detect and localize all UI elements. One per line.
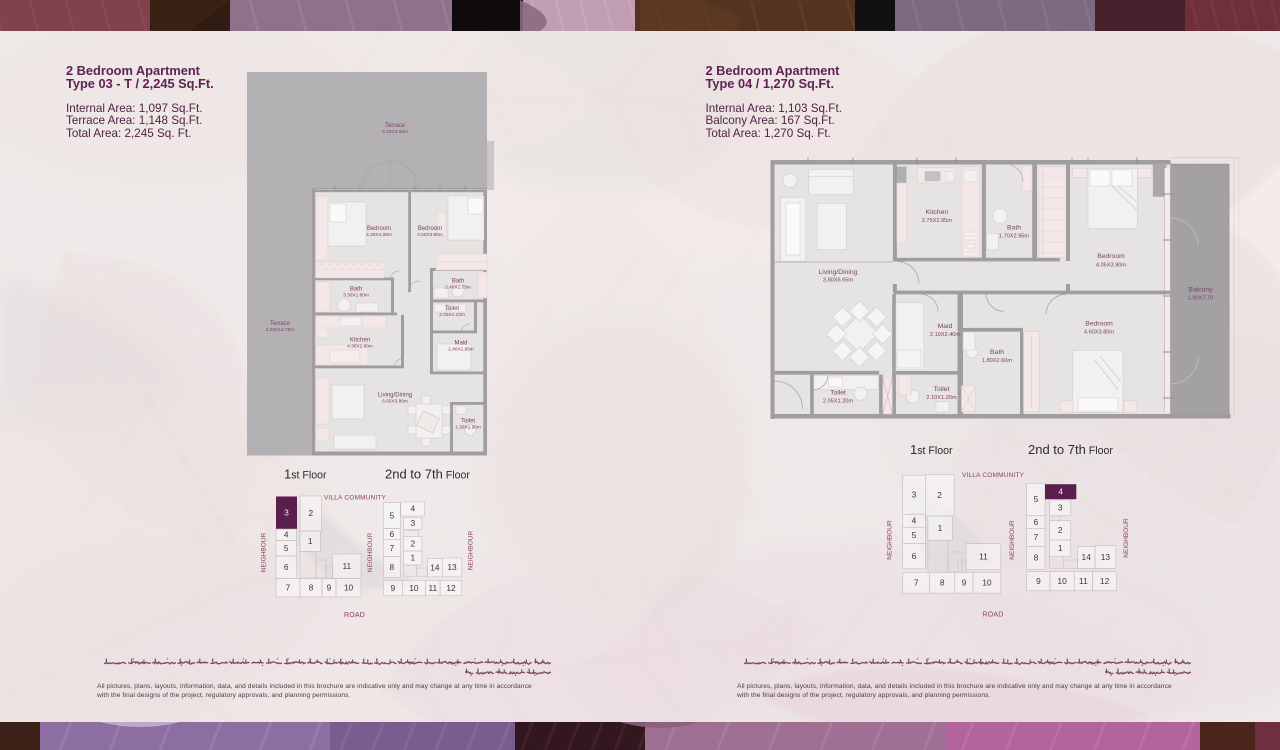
svg-text:1.30X1.90m: 1.30X1.90m: [455, 424, 481, 430]
svg-text:Maid: Maid: [938, 323, 953, 330]
svg-text:7: 7: [286, 583, 291, 593]
svg-text:3: 3: [410, 518, 415, 528]
svg-text:Bedroom: Bedroom: [418, 226, 442, 232]
svg-text:NEIGHBOUR: NEIGHBOUR: [1123, 518, 1130, 558]
svg-text:NEIGHBOUR: NEIGHBOUR: [1009, 520, 1016, 560]
svg-text:2.10X1.20m: 2.10X1.20m: [926, 395, 957, 401]
svg-text:ROAD: ROAD: [344, 612, 365, 619]
svg-text:8: 8: [309, 583, 314, 593]
svg-text:13: 13: [1101, 552, 1111, 562]
svg-text:10: 10: [982, 577, 992, 587]
svg-text:Bath: Bath: [990, 349, 1004, 356]
svg-text:VILLA COMMUNITY: VILLA COMMUNITY: [324, 495, 386, 502]
svg-text:3: 3: [284, 508, 289, 518]
svg-text:8: 8: [940, 577, 945, 587]
svg-text:11: 11: [1079, 576, 1088, 586]
svg-text:Balcony: Balcony: [1188, 287, 1213, 294]
svg-text:Toilet: Toilet: [445, 306, 459, 312]
svg-text:5: 5: [389, 510, 394, 520]
svg-text:2.10X2.40m: 2.10X2.40m: [930, 332, 961, 338]
svg-text:11: 11: [342, 561, 351, 571]
svg-text:8: 8: [1034, 553, 1039, 563]
svg-text:6: 6: [912, 551, 917, 561]
svg-text:1.70X2.95m: 1.70X2.95m: [999, 234, 1030, 240]
svg-text:2.40X1.85m: 2.40X1.85m: [448, 346, 474, 352]
svg-text:4: 4: [1058, 486, 1063, 496]
svg-text:Toilet: Toilet: [461, 419, 475, 425]
svg-text:Bedroom: Bedroom: [1085, 321, 1113, 328]
svg-text:4.30X2.80m: 4.30X2.80m: [347, 343, 373, 349]
svg-text:9: 9: [327, 583, 332, 593]
svg-text:2: 2: [410, 538, 415, 548]
svg-text:7: 7: [1034, 532, 1039, 542]
svg-text:NEIGHBOUR: NEIGHBOUR: [261, 533, 268, 573]
svg-text:1st Floor: 1st Floor: [910, 442, 953, 457]
svg-text:1: 1: [308, 536, 313, 546]
svg-text:Bath: Bath: [350, 287, 362, 293]
svg-text:2.05X1.20m: 2.05X1.20m: [823, 399, 854, 405]
svg-text:3.60X3.80m: 3.60X3.80m: [417, 232, 443, 238]
svg-text:5: 5: [912, 530, 917, 540]
svg-text:NEIGHBOUR: NEIGHBOUR: [367, 533, 374, 573]
svg-text:2: 2: [1058, 525, 1063, 535]
svg-text:9: 9: [390, 583, 395, 593]
svg-text:Terrace: Terrace: [270, 321, 291, 327]
svg-text:2nd to 7th Floor: 2nd to 7th Floor: [385, 467, 470, 482]
svg-text:Toilet: Toilet: [830, 390, 846, 397]
svg-text:VILLA COMMUNITY: VILLA COMMUNITY: [962, 472, 1024, 479]
svg-text:2.00X1.10m: 2.00X1.10m: [439, 312, 465, 318]
svg-text:7: 7: [389, 543, 394, 553]
svg-text:12: 12: [446, 583, 456, 593]
svg-text:1st Floor: 1st Floor: [284, 467, 327, 482]
svg-text:Living/Dining: Living/Dining: [819, 269, 858, 276]
svg-text:ROAD: ROAD: [982, 612, 1003, 619]
svg-text:8.20X3.80m: 8.20X3.80m: [382, 129, 408, 135]
svg-text:14: 14: [430, 563, 440, 573]
svg-text:Toilet: Toilet: [934, 386, 950, 393]
svg-text:11: 11: [979, 551, 988, 561]
svg-text:2nd to 7th Floor: 2nd to 7th Floor: [1028, 442, 1113, 457]
svg-text:4.05X3.90m: 4.05X3.90m: [1096, 263, 1127, 269]
svg-text:9: 9: [962, 577, 967, 587]
svg-text:1: 1: [410, 553, 415, 563]
svg-text:3: 3: [912, 489, 917, 499]
svg-text:2: 2: [937, 490, 942, 500]
svg-text:6.65X3.80m: 6.65X3.80m: [382, 398, 408, 404]
svg-text:10: 10: [409, 583, 419, 593]
svg-text:14: 14: [1082, 552, 1092, 562]
svg-text:4.30X4.08m: 4.30X4.08m: [366, 232, 392, 238]
svg-text:1.90X7.70: 1.90X7.70: [1188, 296, 1214, 302]
svg-text:1: 1: [938, 523, 943, 533]
svg-text:11: 11: [428, 583, 437, 593]
svg-text:6: 6: [1034, 517, 1039, 527]
svg-text:12: 12: [1100, 576, 1110, 586]
svg-text:8: 8: [389, 562, 394, 572]
svg-text:4: 4: [410, 504, 415, 514]
svg-text:10: 10: [344, 583, 354, 593]
svg-text:7: 7: [914, 577, 919, 587]
svg-text:3.20X12.75m: 3.20X12.75m: [266, 327, 295, 333]
svg-text:3.30X1.80m: 3.30X1.80m: [343, 292, 369, 298]
svg-text:1.80X2.60m: 1.80X2.60m: [982, 358, 1013, 364]
svg-text:NEIGHBOUR: NEIGHBOUR: [468, 531, 475, 571]
svg-text:9: 9: [1036, 576, 1041, 586]
svg-text:2.40X1.75m: 2.40X1.75m: [445, 284, 471, 290]
svg-text:Bath: Bath: [452, 279, 464, 285]
svg-text:1: 1: [1058, 543, 1063, 553]
svg-text:NEIGHBOUR: NEIGHBOUR: [887, 520, 894, 560]
svg-text:13: 13: [447, 562, 457, 572]
svg-text:2.75X2.95m: 2.75X2.95m: [922, 218, 953, 224]
svg-text:Kitchen: Kitchen: [925, 209, 948, 216]
svg-text:Terrace: Terrace: [385, 123, 406, 129]
svg-text:Living/Dining: Living/Dining: [378, 393, 412, 399]
svg-text:Kitchen: Kitchen: [350, 338, 370, 344]
svg-text:10: 10: [1057, 576, 1067, 586]
svg-text:Bedroom: Bedroom: [1097, 253, 1125, 260]
svg-text:3: 3: [1058, 503, 1063, 513]
svg-text:Bath: Bath: [1007, 225, 1021, 232]
svg-text:6: 6: [389, 529, 394, 539]
svg-text:6: 6: [284, 562, 289, 572]
svg-text:Maid: Maid: [454, 341, 467, 347]
svg-text:4: 4: [284, 530, 289, 540]
svg-text:4.60X3.80m: 4.60X3.80m: [1084, 330, 1115, 336]
svg-text:2: 2: [308, 508, 313, 518]
svg-text:5: 5: [1034, 494, 1039, 504]
svg-text:5: 5: [284, 543, 289, 553]
svg-text:3.80X6.65m: 3.80X6.65m: [823, 278, 854, 284]
svg-text:Bedroom: Bedroom: [367, 226, 391, 232]
svg-text:4: 4: [912, 515, 917, 525]
